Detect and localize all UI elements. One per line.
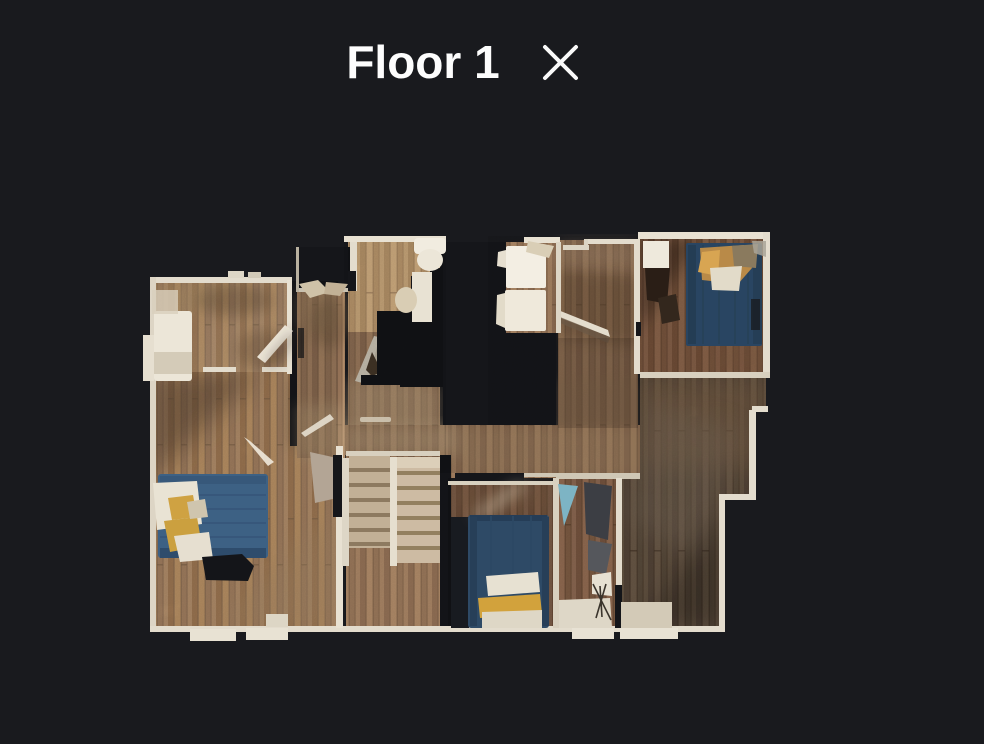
svg-text:Floor 1: Floor 1 <box>346 36 499 88</box>
